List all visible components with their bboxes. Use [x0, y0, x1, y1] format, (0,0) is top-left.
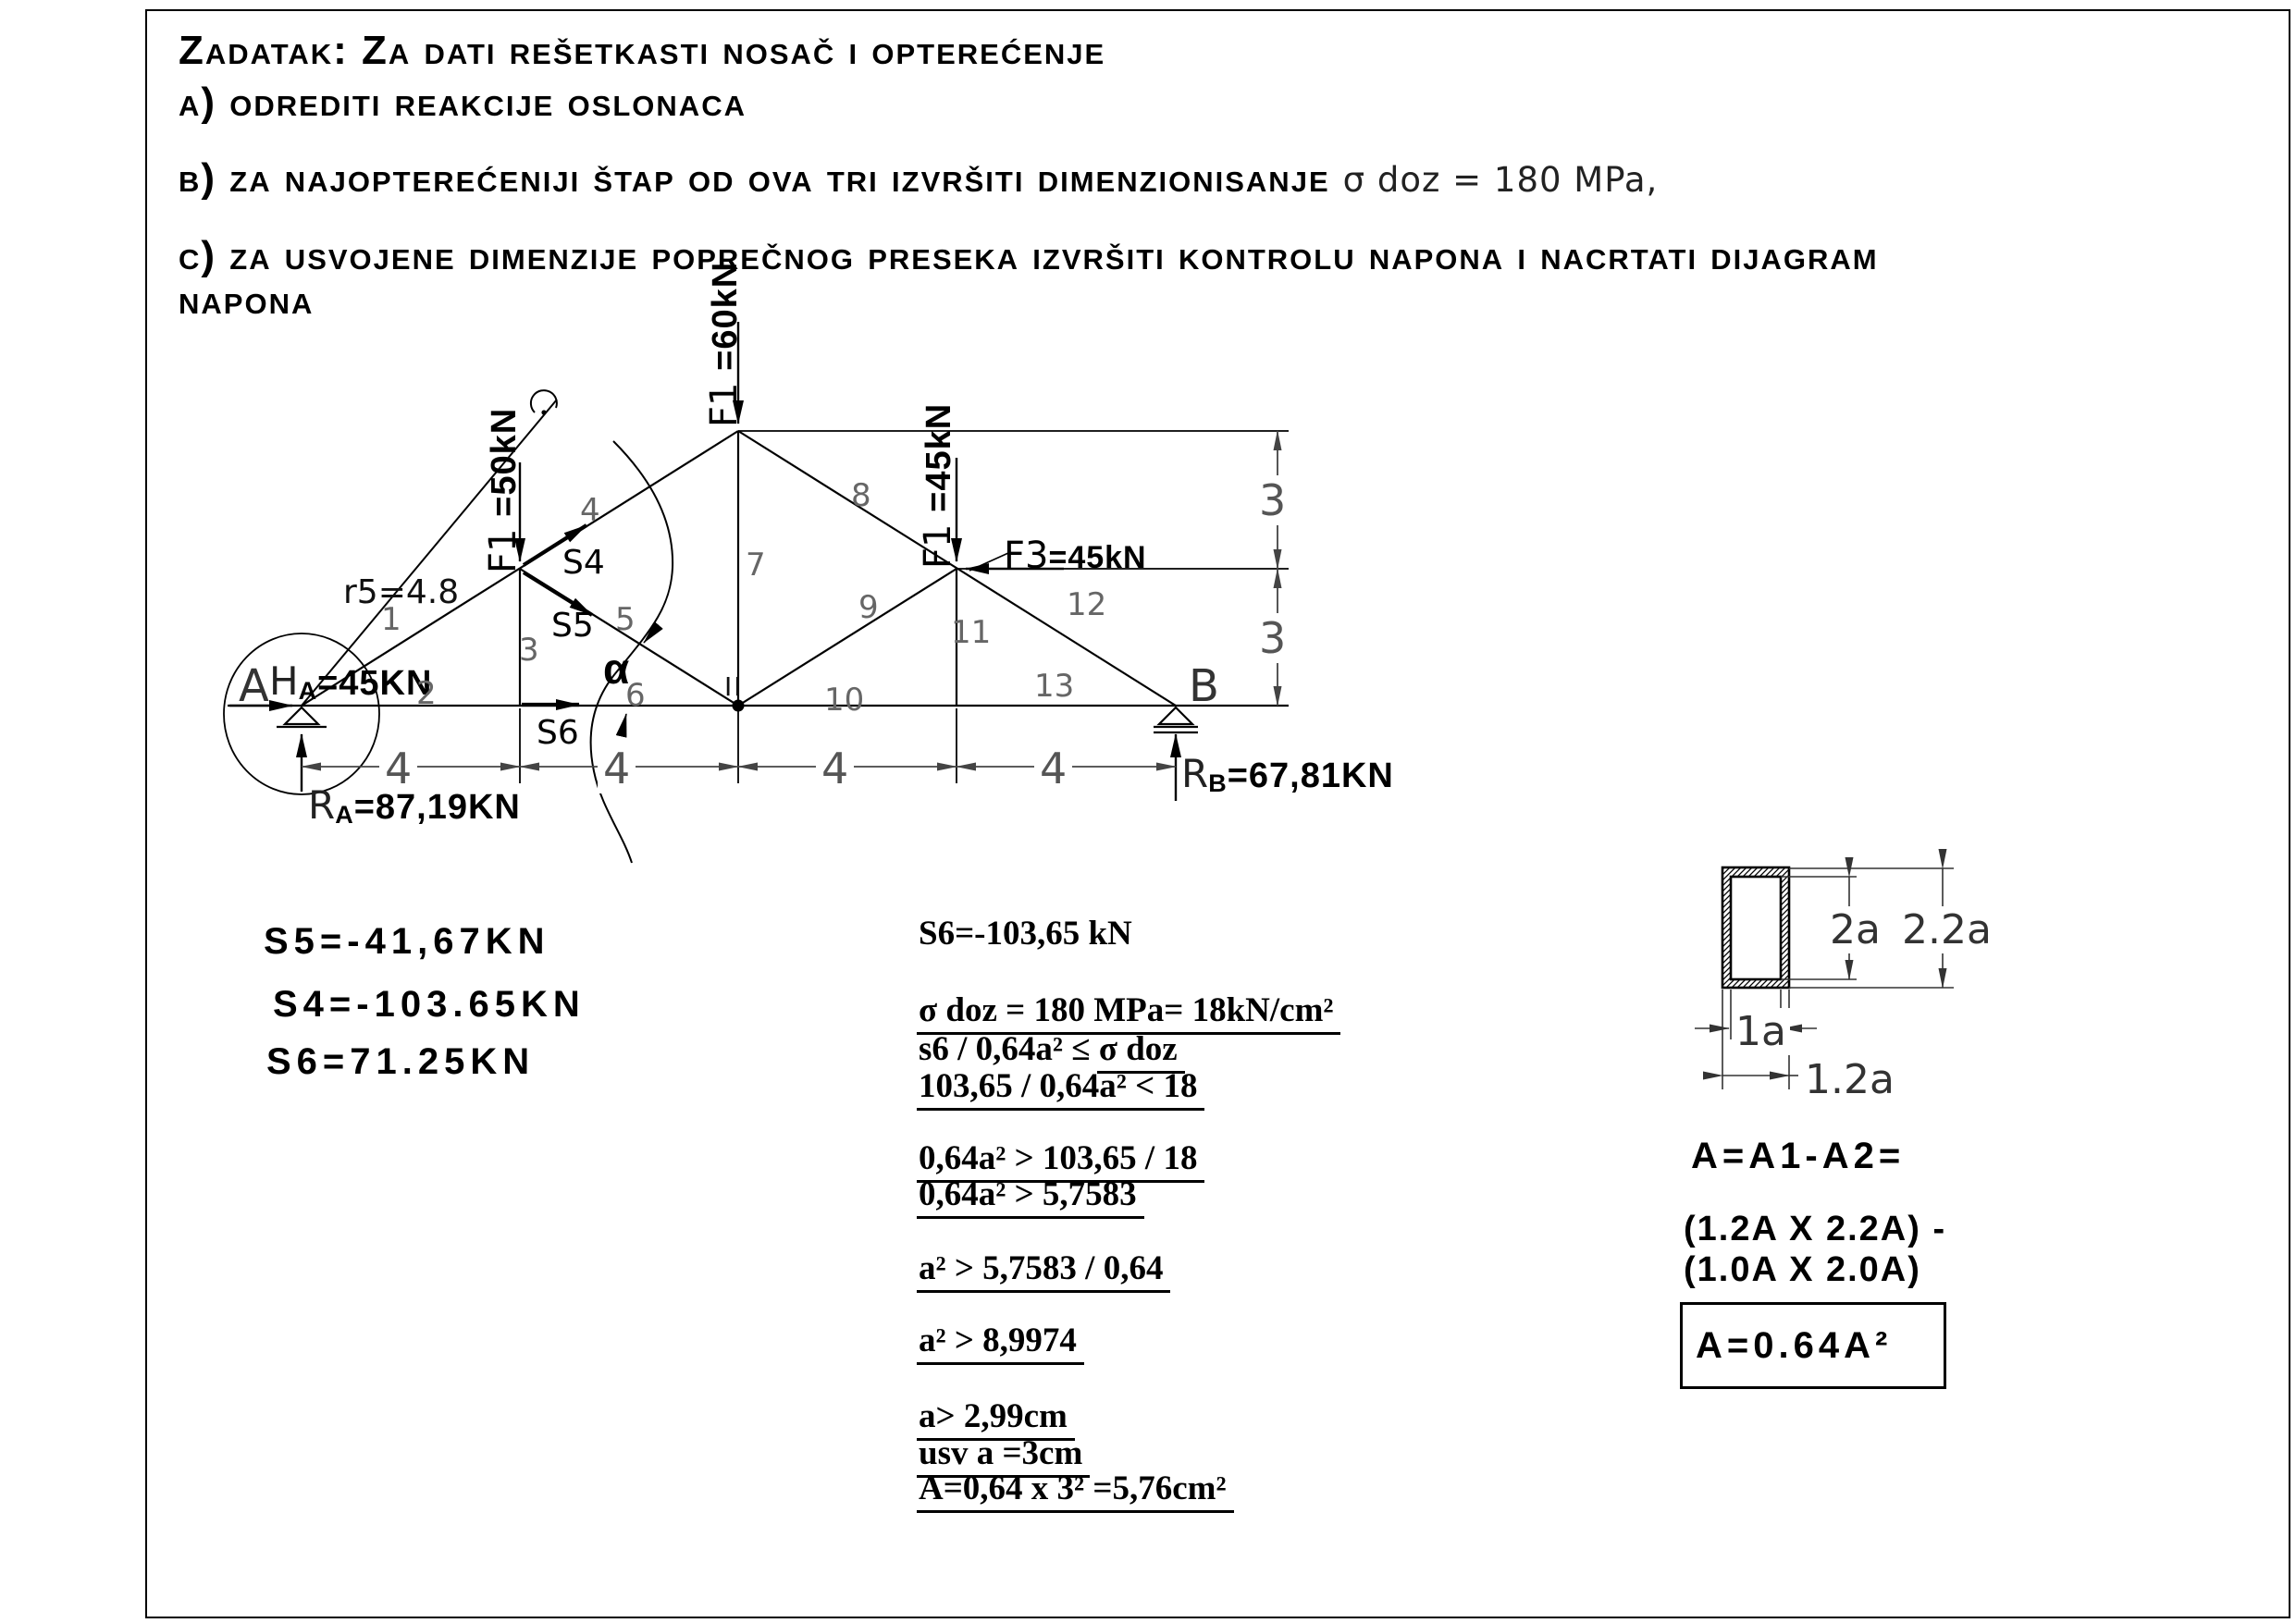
member-label-9: 9 [858, 589, 879, 626]
dim-horizontal-1: 4 [379, 744, 417, 793]
task-item-c-line2: napona [179, 277, 314, 324]
ra-subscript: A [335, 801, 354, 829]
area-result-value: A=0.64A² [1696, 1325, 1892, 1367]
dim-horizontal-4: 4 [1034, 744, 1072, 793]
member-label-13: 13 [1034, 668, 1074, 705]
area-formula-line1: A=A1-A2= [1691, 1136, 1905, 1177]
member-label-6: 6 [625, 677, 646, 714]
ha-value: =45KN [317, 664, 432, 703]
s5-label: S5 [551, 607, 594, 645]
support-a-label: A [239, 660, 269, 712]
calc-line-7-part: a² > 5,7583 / 0,64 [917, 1248, 1170, 1293]
member-label-11: 11 [951, 614, 991, 651]
dim-horizontal-3: 4 [816, 744, 854, 793]
worksheet-page: { "header": { "title": "Zadatak: Za dati… [0, 0, 2296, 1623]
reaction-ha-label: HA=45KN [269, 658, 432, 704]
area-result-box: A=0.64A² [1680, 1302, 1946, 1389]
calc-line-7: a² > 5,7583 / 0,64 [919, 1248, 1170, 1293]
task-item-b: b) za najopterećeniji štap od ova tri iz… [179, 155, 1658, 202]
task-item-b-note: σ doz = 180 MPa, [1343, 160, 1659, 200]
section-dim-2a: 2a [1826, 906, 1884, 953]
support-b-label: B [1189, 660, 1219, 712]
force-f1-right-value: =45kN [920, 403, 958, 512]
calc-line-8: a² > 8,9974 [919, 1321, 1084, 1365]
extension-lines [520, 431, 1289, 783]
force-f1-mid-label: F1 =50kN [482, 408, 525, 573]
result-line-2: S4=-103.65KN [273, 984, 586, 1026]
force-f1-right-name: F1 [917, 512, 959, 569]
section-dim-12a: 1.2a [1801, 1056, 1898, 1103]
member-label-10: 10 [824, 682, 864, 719]
node-ii-label: II [724, 671, 744, 702]
result-line-3: S6=71.25KN [266, 1041, 535, 1083]
section-dim-1a: 1a [1732, 1008, 1790, 1055]
force-f1-right-label: F1 =45kN [917, 403, 959, 569]
calc-line-11-part: A=0,64 x 3² =5,76cm² [917, 1469, 1234, 1513]
task-title: Zadatak: Za dati rešetkasti nosač i opte… [179, 28, 1105, 74]
force-f3-value: =45kN [1048, 540, 1146, 575]
rb-value: =67,81KN [1228, 756, 1394, 795]
member-label-1: 1 [381, 601, 401, 638]
force-f1-top-label: F1 =60kN [703, 262, 746, 427]
rb-subscript: B [1208, 769, 1228, 797]
task-item-c-line1: c) za usvojene dimenzije poprečnog prese… [179, 233, 1879, 279]
ha-subscript: A [299, 677, 318, 705]
ha-symbol: H [269, 658, 299, 704]
ra-value: =87,19KN [354, 788, 521, 827]
result-line-1: S5=-41,67KN [264, 921, 549, 963]
section-dim-22a: 2.2a [1898, 906, 1995, 953]
force-f1-mid-name: F1 [482, 517, 525, 573]
calc-line-11: A=0,64 x 3² =5,76cm² [919, 1469, 1234, 1513]
calc-line-2: σ doz = 180 MPa= 18kN/cm² [919, 990, 1340, 1035]
member-label-12: 12 [1067, 586, 1106, 623]
reaction-rb-label: RB=67,81KN [1181, 751, 1394, 796]
force-f1-mid-value: =50kN [485, 408, 524, 517]
force-f1-top-value: =60kN [706, 262, 745, 371]
calc-line-3-part: s6 / 0,64a² ≤ [919, 1030, 1099, 1068]
member-label-5: 5 [615, 601, 636, 638]
dim-horizontal-2: 4 [598, 744, 636, 793]
area-formula-line2: (1.2A X 2.2A) - [1684, 1210, 1946, 1249]
force-f3-label: F3=45kN [1004, 535, 1147, 577]
ra-symbol: R [308, 782, 335, 828]
calc-line-8-part: a² > 8,9974 [917, 1321, 1084, 1365]
task-item-b-text: b) za najopterećeniji štap od ova tri iz… [179, 155, 1330, 201]
calc-line-4: 103,65 / 0,64a² < 18 [919, 1066, 1204, 1111]
dim-vertical-2: 3 [1253, 613, 1291, 663]
dim-vertical-1: 3 [1253, 475, 1291, 525]
member-label-8: 8 [851, 477, 871, 514]
force-f1-top-name: F1 [703, 371, 746, 427]
member-label-3: 3 [519, 632, 539, 669]
calc-line-1: S6=-103,65 kN [919, 914, 1132, 953]
force-f3-name: F3 [1004, 535, 1048, 577]
member-label-7: 7 [746, 547, 766, 584]
area-formula-line3: (1.0A X 2.0A) [1684, 1250, 1921, 1290]
calc-line-6-part: 0,64a² > 5,7583 [917, 1174, 1144, 1219]
member-label-4: 4 [580, 492, 600, 529]
task-item-a: a) odrediti reakcije oslonaca [179, 80, 747, 126]
s6-label: S6 [537, 714, 579, 752]
rb-symbol: R [1181, 751, 1208, 796]
s4-label: S4 [562, 544, 605, 582]
member-label-2: 2 [416, 675, 437, 712]
calc-line-4-part: 103,65 / 0,64a² < 18 [917, 1066, 1204, 1111]
calc-line-2-part: σ doz = 180 MPa= 18kN/cm² [917, 990, 1340, 1035]
calc-line-1-part: S6=-103,65 kN [919, 915, 1132, 953]
calc-line-6: 0,64a² > 5,7583 [919, 1174, 1144, 1219]
